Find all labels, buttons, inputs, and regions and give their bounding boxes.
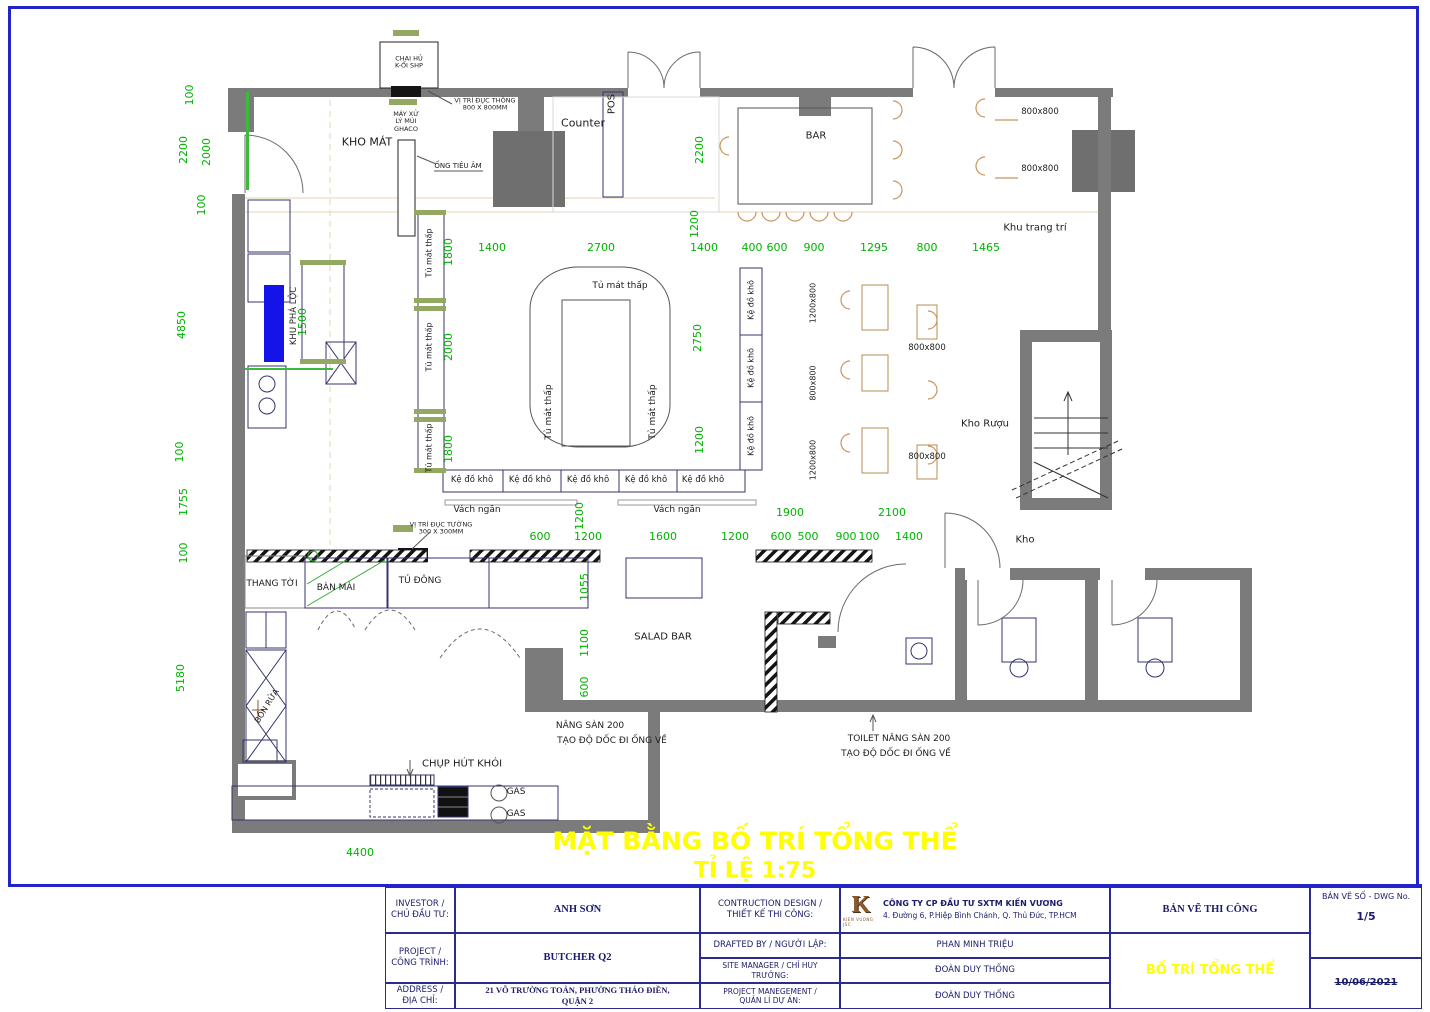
plan-label: SALAD BAR [634,631,692,643]
plan-label: NÂNG SÀN 200 [556,721,624,731]
plan-label: 800x800 [908,344,945,354]
dimension-label: 600 [579,677,591,698]
dimension-label: 2000 [201,138,213,166]
dwg-number: 1/5 [1356,910,1375,924]
dimension-label: 100 [178,543,190,564]
dimension-label: 1295 [860,242,888,254]
drafted-value: PHAN MINH TRIỆU [840,933,1110,958]
dimension-label: 1400 [895,531,923,543]
plan-label: 1200x800 [808,283,817,323]
dimension-label: 600 [530,531,551,543]
plan-label: Kệ đồ khô [746,416,755,456]
plan-label: Tủ mát thấp [544,384,554,439]
dimension-label: 1200 [694,426,706,454]
plan-label: Kệ đồ khô [746,348,755,388]
dimension-label: 600 [767,242,788,254]
plan-label: Kệ đồ khô [746,280,755,320]
logo-k-icon: K [852,893,871,917]
dwg-number-cell: BẢN VẼ SỐ - DWG No. 1/5 [1310,887,1422,958]
plan-label: Tủ mát thấp [592,281,647,291]
dimension-label: 1900 [776,507,804,519]
plan-label: 800x800 [908,453,945,463]
dimension-label: 500 [798,531,819,543]
pm-label: PROJECT MANEGEMENT / QUẢN LÍ DỰ ÁN: [700,983,840,1009]
plan-label: TOILET NÂNG SÀN 200 [848,734,951,744]
dimension-label: 100 [184,85,196,106]
project-label: PROJECT / CÔNG TRÌNH: [385,933,455,983]
construction-lines [245,100,1098,545]
dimension-label: 400 [742,242,763,254]
dimension-label: 1100 [579,629,591,657]
dimension-label: 600 [771,531,792,543]
address-label: ADDRESS / ĐỊA CHỈ: [385,983,455,1009]
dimension-label: 2100 [878,507,906,519]
company-cell: K KIEN VUONG JSC CÔNG TY CP ĐẦU TƯ SXTM … [840,887,1110,933]
plan-label: TẠO ĐỘ DỐC ĐI ỐNG VỀ [841,749,951,759]
investor-label: INVESTOR / CHỦ ĐẦU TƯ: [385,887,455,933]
plan-label: Kệ đồ khô [567,476,609,486]
plan-title: MẶT BẰNG BỐ TRÍ TỔNG THỂ [552,827,957,856]
plan-label: VỊ TRÍ ĐỤC THÔNG 800 X 800MM [454,98,515,113]
dimension-label: 1800 [443,435,455,463]
wall-niche [236,762,294,798]
dimension-label: 100 [196,195,208,216]
plan-label: Kệ đồ khô [682,476,724,486]
dimension-label: 1200 [689,210,701,238]
dimension-label: 2750 [692,324,704,352]
dimension-label: 100 [174,442,186,463]
plan-label: Tủ mát thấp [424,322,433,371]
dimension-label: 1800 [443,238,455,266]
dimension-label: 900 [804,242,825,254]
plan-label: CHAI HỦ K-ỔI SHP [395,56,423,71]
dimension-label: 2200 [178,136,190,164]
sheet-type: BẢN VẼ THI CÔNG [1110,887,1310,933]
logo-caption: KIEN VUONG JSC [843,917,879,927]
plan-label: VỊ TRÍ ĐỤC TƯỜNG 300 X 300MM [410,522,473,537]
plan-label: Vách ngăn [453,505,500,515]
dimension-label: 4850 [176,311,188,339]
dimension-label: 1755 [178,488,190,516]
dimension-label: 1055 [579,573,591,601]
plan-label: THANG TỜI [246,579,297,589]
plan-label: CHỤP HÚT KHÓI [422,758,502,770]
plan-label: Tủ mát thấp [648,384,658,439]
investor-value: ANH SƠN [455,887,700,933]
plan-label: BÀN MÁI [317,583,356,593]
plan-label: POS [606,94,618,114]
blue-highlight-unit [264,285,284,362]
plan-label: GAS [507,787,526,797]
dimension-label: 2000 [443,333,455,361]
shelf-caps [245,30,446,532]
dimension-label: 1400 [690,242,718,254]
dimension-label: 100 [859,531,880,543]
plan-label: 1200x800 [808,440,817,480]
plan-label: Kho [1015,534,1034,546]
plan-label: 800x800 [1021,108,1058,118]
date-stamp: 10/06/2021 [1335,977,1398,990]
company-name: CÔNG TY CP ĐẦU TƯ SXTM KIẾN VƯƠNG [883,899,1077,909]
plan-label: KHU PHÁ LỘC [290,287,300,345]
chair-arcs [720,99,1018,464]
plan-label: Kệ đồ khô [451,476,493,486]
drawing-sheet: { "sheet": { "plan_title": "MẶT BẰNG BỐ … [0,0,1430,1012]
address-value: 21 VÕ TRƯỜNG TOẢN, PHƯỜNG THẢO ĐIỀN, QUẬ… [455,983,700,1009]
plan-label: KHO MÁT [342,137,393,150]
drafted-label: DRAFTED BY / NGƯỜI LẬP: [700,933,840,958]
plan-label: BAR [806,130,827,142]
plan-label: Tủ mát thấp [424,228,433,277]
dimension-label: 5180 [175,664,187,692]
plan-label: 800x800 [1021,165,1058,175]
site-manager-value: ĐOÀN DUY THỐNG [840,958,1110,983]
dimension-label: 1200 [574,502,586,530]
plan-label: Kệ đồ khô [625,476,667,486]
dimension-label: 800 [917,242,938,254]
plan-label: Kho Rượu [961,418,1009,430]
dimension-label: 2200 [694,136,706,164]
plan-label: TẠO ĐỘ DỐC ĐI ỐNG VỀ [557,736,667,746]
plan-label: 800x800 [808,365,817,400]
dimension-label: 1200 [721,531,749,543]
dimension-label: 4400 [346,847,374,859]
dimension-label: 1600 [649,531,677,543]
dimension-label: 2700 [587,242,615,254]
site-manager-label: SITE MANAGER / CHỈ HUY TRƯỞNG: [700,958,840,983]
floor-plan: 1002200200010048501500100175510051801400… [0,0,1430,890]
company-address: 4. Đường 6, P.Hiệp Bình Chánh, Q. Thủ Đứ… [883,911,1077,920]
sheet-title: BỐ TRÍ TỔNG THỂ [1110,933,1310,1009]
dimension-label: 1200 [574,531,602,543]
plan-label: TỦ ĐÔNG [399,576,442,586]
pm-value: ĐOÀN DUY THỐNG [840,983,1110,1009]
date-cell: 10/06/2021 [1310,958,1422,1009]
plan-label: Vách ngăn [653,505,700,515]
project-value: BUTCHER Q2 [455,933,700,983]
plan-label: Tủ mát thấp [424,423,433,472]
plan-label: Kệ đồ khô [509,476,551,486]
dimension-label: 900 [836,531,857,543]
company-logo: K KIEN VUONG JSC [843,890,879,930]
plan-label: ỐNG TIÊU ÂM [434,162,481,170]
plan-label: Counter [561,118,605,131]
title-block: INVESTOR / CHỦ ĐẦU TƯ: ANH SƠN PROJECT /… [8,884,1422,1006]
plan-label: GAS [507,809,526,819]
plan-label: Khu trang trí [1003,222,1066,234]
design-label: CONTRUCTION DESIGN / THIẾT KẾ THI CÔNG: [700,887,840,933]
dwg-label: BẢN VẼ SỐ - DWG No. [1322,892,1410,902]
plan-scale: TỈ LỆ 1:75 [694,859,816,884]
dimension-label: 1400 [478,242,506,254]
plan-label: MÁY XỬ LÝ MÙI GHACO [393,111,419,133]
leader-lines [407,91,876,776]
dimension-label: 1465 [972,242,1000,254]
